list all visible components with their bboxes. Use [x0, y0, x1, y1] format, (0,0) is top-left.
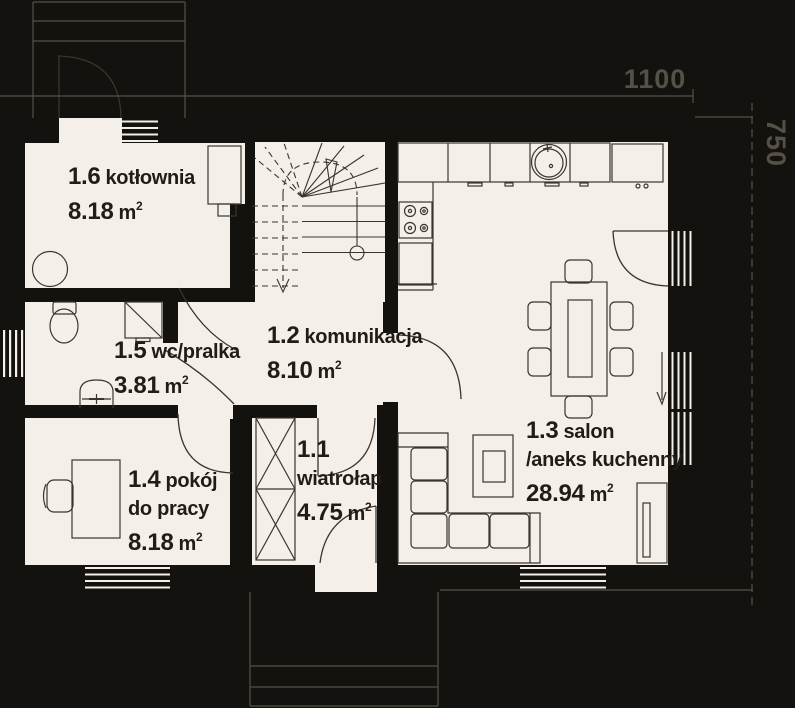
- window-salon-bottom: [520, 567, 606, 589]
- door-opening-entrance: [315, 565, 377, 592]
- window-terrace-door-right: [672, 231, 692, 286]
- window-kotlownia-top: [122, 121, 158, 143]
- window-wc-left: [3, 330, 23, 377]
- room-label-salon: 1.3salon /aneks kuchenny 28.94m2: [526, 417, 683, 510]
- room-label-kotlownia: 1.6kotłownia 8.18m2: [68, 163, 195, 228]
- window-pokoj-bottom: [85, 567, 170, 589]
- room-label-komunikacja: 1.2komunikacja 8.10m2: [267, 322, 422, 387]
- floor-plan-canvas: 1100 750 1.6kotłownia 8.18m2 1.5wc/pralk…: [0, 0, 795, 708]
- dimension-line-top: [0, 89, 693, 103]
- terrace-top-left: [33, 2, 185, 118]
- room-label-wiatrolap: 1.1 wiatrołap 4.75m2: [297, 436, 382, 529]
- room-label-wc: 1.5wc/pralka 3.81m2: [114, 337, 240, 402]
- entrance-porch: [250, 592, 438, 706]
- room-label-pokoj: 1.4pokój do pracy 8.18m2: [128, 466, 217, 559]
- door-opening-pokoj: [178, 404, 233, 419]
- dimension-height-label: 750: [760, 119, 791, 167]
- dimension-width-label: 1100: [600, 64, 710, 95]
- door-kotlownia-exterior: [59, 55, 121, 118]
- room-floor-kotlownia-niche: [228, 143, 245, 204]
- door-opening-kotlownia-exterior: [59, 118, 122, 144]
- door-opening-wiatrolap: [317, 404, 377, 419]
